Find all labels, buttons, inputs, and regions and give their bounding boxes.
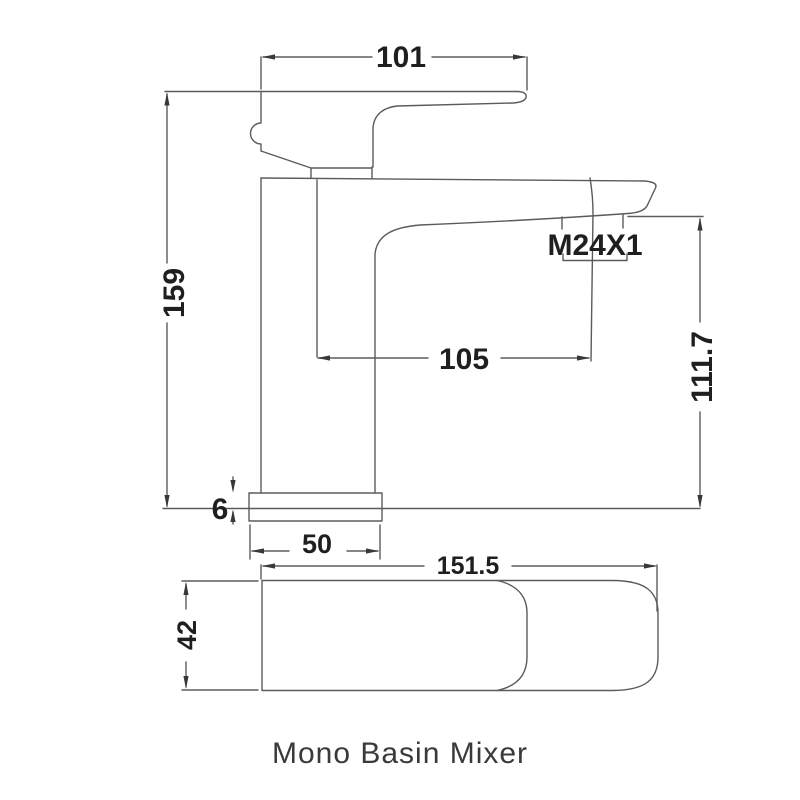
handle-lever-outline [373,92,526,168]
spout-body-outline [261,178,656,493]
dimension-base-width: 50 [250,525,380,559]
dim-6-arrow-up [230,510,235,523]
lever-outer-outline [262,581,658,691]
dimension-lever-length: 151.5 [261,552,657,611]
dim-101-arrow-right [513,54,526,59]
dim-151-label: 151.5 [437,552,500,580]
dim-105-label: 105 [439,343,489,376]
dimension-overall-height: 159 [158,93,191,509]
dim-50-arrow-right [366,548,379,553]
base-plate [249,493,382,521]
dimension-lever-width: 42 [172,581,258,690]
dim-6-label: 6 [212,493,229,526]
dim-42-label: 42 [172,620,202,650]
thread-spec-label: M24X1 [547,229,642,262]
handle-left-edge [251,92,262,152]
dim-50-label: 50 [302,529,332,559]
dim-105-arrow-right [577,355,590,360]
lever-grip-edge [497,581,527,691]
dim-111-label: 111.7 [686,331,719,403]
dim-151-arrow-left [262,563,275,568]
dim-6-arrow-down [230,480,235,493]
dim-159-label: 159 [158,268,191,318]
dim-42-arrow-bottom [183,676,188,689]
dim-111-arrow-bottom [697,495,702,508]
dim-42-arrow-top [183,582,188,595]
dim-50-arrow-left [251,548,264,553]
dim-159-arrow-bottom [164,495,169,508]
dimension-base-thickness: 6 [212,477,236,526]
dim-105-arrow-left [317,355,330,360]
technical-drawing-mono-basin-mixer: 101 159 105 M24X1 111.7 6 50 [0,0,800,800]
drawing-canvas: 101 159 105 M24X1 111.7 6 50 [0,0,800,800]
thread-callout: M24X1 [547,215,642,262]
dimension-handle-length: 101 [261,41,527,90]
dimension-spout-reach: 105 [317,343,590,376]
dim-101-label: 101 [376,41,426,74]
dim-151-arrow-right [644,563,657,568]
product-caption: Mono Basin Mixer [272,737,528,770]
faucet-side-view [163,92,700,522]
dim-101-arrow-left [262,54,275,59]
dim-111-arrow-top [697,218,702,231]
spout-tip-separator [590,178,593,361]
handle-skirt [261,151,372,178]
handle-top-view [262,581,658,691]
dim-159-arrow-top [164,93,169,106]
